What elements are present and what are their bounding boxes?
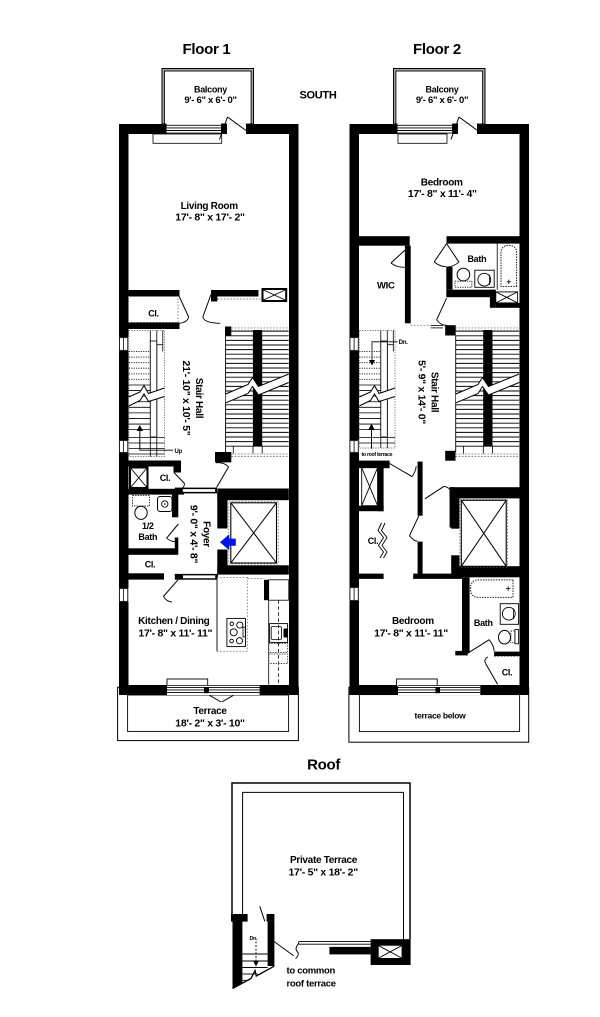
svg-text:Stair Hall: Stair Hall xyxy=(193,378,204,419)
svg-text:Foyer: Foyer xyxy=(201,521,212,547)
svg-text:Cl.: Cl. xyxy=(368,536,379,546)
svg-text:Kitchen / Dining: Kitchen / Dining xyxy=(138,616,210,627)
svg-text:9'- 6" x 6'- 0": 9'- 6" x 6'- 0" xyxy=(416,95,468,106)
svg-text:to common: to common xyxy=(287,966,336,977)
svg-text:WIC: WIC xyxy=(377,280,395,291)
svg-text:Floor 2: Floor 2 xyxy=(413,41,461,58)
svg-text:Cl.: Cl. xyxy=(145,560,156,570)
svg-text:17'- 8" x 17'- 2": 17'- 8" x 17'- 2" xyxy=(175,212,245,224)
svg-text:Cl.: Cl. xyxy=(160,473,171,483)
svg-text:Dn.: Dn. xyxy=(399,340,408,346)
svg-text:17'- 8" x 11'- 11": 17'- 8" x 11'- 11" xyxy=(374,628,448,640)
svg-text:Terrace: Terrace xyxy=(193,706,227,717)
svg-text:Bath: Bath xyxy=(467,254,486,264)
svg-text:Cl.: Cl. xyxy=(502,667,513,677)
svg-text:Dn.: Dn. xyxy=(250,936,259,942)
svg-text:Bedroom: Bedroom xyxy=(421,178,463,189)
svg-text:terrace below: terrace below xyxy=(415,711,467,721)
svg-text:to roof terrace: to roof terrace xyxy=(362,452,393,458)
svg-text:9'- 6" x 6'- 0": 9'- 6" x 6'- 0" xyxy=(184,95,236,106)
svg-text:21'- 10" x 10'- 5": 21'- 10" x 10'- 5" xyxy=(180,361,192,436)
svg-text:SOUTH: SOUTH xyxy=(299,90,336,102)
svg-text:5'- 9" x 14'- 0": 5'- 9" x 14'- 0" xyxy=(416,360,428,424)
svg-text:Bath: Bath xyxy=(474,618,493,628)
svg-text:18'- 2" x 3'- 10": 18'- 2" x 3'- 10" xyxy=(175,717,245,729)
svg-text:roof terrace: roof terrace xyxy=(287,979,336,990)
svg-text:Roof: Roof xyxy=(307,757,341,774)
svg-text:Balcony: Balcony xyxy=(426,85,459,95)
svg-text:Private Terrace: Private Terrace xyxy=(290,855,358,866)
svg-text:Bath: Bath xyxy=(138,532,157,542)
svg-text:Up: Up xyxy=(175,449,183,455)
svg-text:1/2: 1/2 xyxy=(142,521,154,531)
svg-text:Living Room: Living Room xyxy=(181,201,239,212)
svg-text:17'- 8" x 11'- 11": 17'- 8" x 11'- 11" xyxy=(138,627,212,639)
svg-text:17'- 5" x 18'- 2": 17'- 5" x 18'- 2" xyxy=(289,867,359,879)
svg-text:Stair Hall: Stair Hall xyxy=(429,372,440,413)
svg-text:9'- 0" x 4'- 8": 9'- 0" x 4'- 8" xyxy=(188,505,200,564)
svg-text:17'- 8" x 11'- 4": 17'- 8" x 11'- 4" xyxy=(408,188,477,200)
svg-text:Balcony: Balcony xyxy=(194,85,227,95)
svg-text:Bedroom: Bedroom xyxy=(392,616,434,627)
svg-text:Floor 1: Floor 1 xyxy=(183,41,231,58)
svg-text:Cl.: Cl. xyxy=(148,309,159,319)
